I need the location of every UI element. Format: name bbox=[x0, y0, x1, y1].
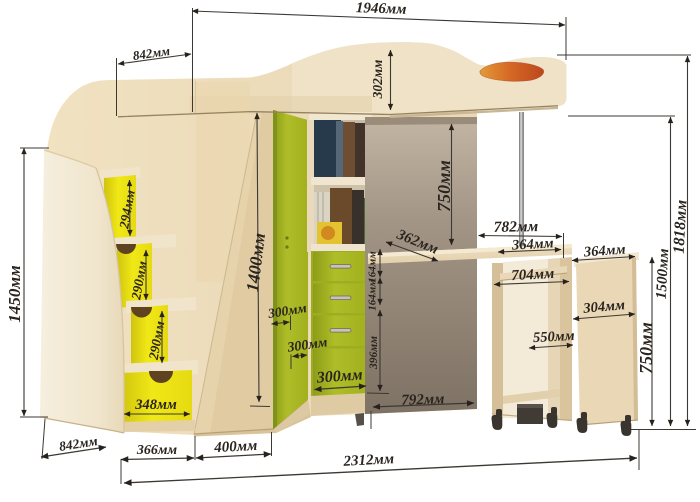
svg-text:302мм: 302мм bbox=[370, 60, 385, 100]
svg-text:842мм: 842мм bbox=[132, 43, 171, 63]
svg-text:164мм: 164мм bbox=[367, 251, 379, 283]
svg-text:1450мм: 1450мм bbox=[5, 265, 24, 323]
svg-text:366мм: 366мм bbox=[136, 443, 178, 458]
svg-text:750мм: 750мм bbox=[636, 322, 656, 374]
svg-text:782мм: 782мм bbox=[494, 218, 539, 236]
svg-text:792мм: 792мм bbox=[401, 391, 445, 408]
svg-text:2312мм: 2312мм bbox=[342, 451, 394, 470]
svg-text:364мм: 364мм bbox=[582, 242, 626, 261]
svg-text:1500мм: 1500мм bbox=[654, 248, 673, 299]
svg-text:396мм: 396мм bbox=[368, 336, 380, 370]
svg-text:550мм: 550мм bbox=[533, 328, 575, 346]
svg-text:1946мм: 1946мм bbox=[356, 0, 407, 18]
svg-text:164мм: 164мм bbox=[367, 279, 379, 311]
svg-text:704мм: 704мм bbox=[511, 266, 555, 284]
svg-text:364мм: 364мм bbox=[511, 235, 554, 253]
svg-text:348мм: 348мм bbox=[134, 397, 177, 413]
svg-text:750мм: 750мм bbox=[434, 160, 454, 212]
svg-text:300мм: 300мм bbox=[315, 366, 363, 386]
svg-text:1818мм: 1818мм bbox=[671, 199, 691, 254]
svg-text:842мм: 842мм bbox=[58, 433, 99, 454]
svg-text:400мм: 400мм bbox=[213, 438, 258, 456]
